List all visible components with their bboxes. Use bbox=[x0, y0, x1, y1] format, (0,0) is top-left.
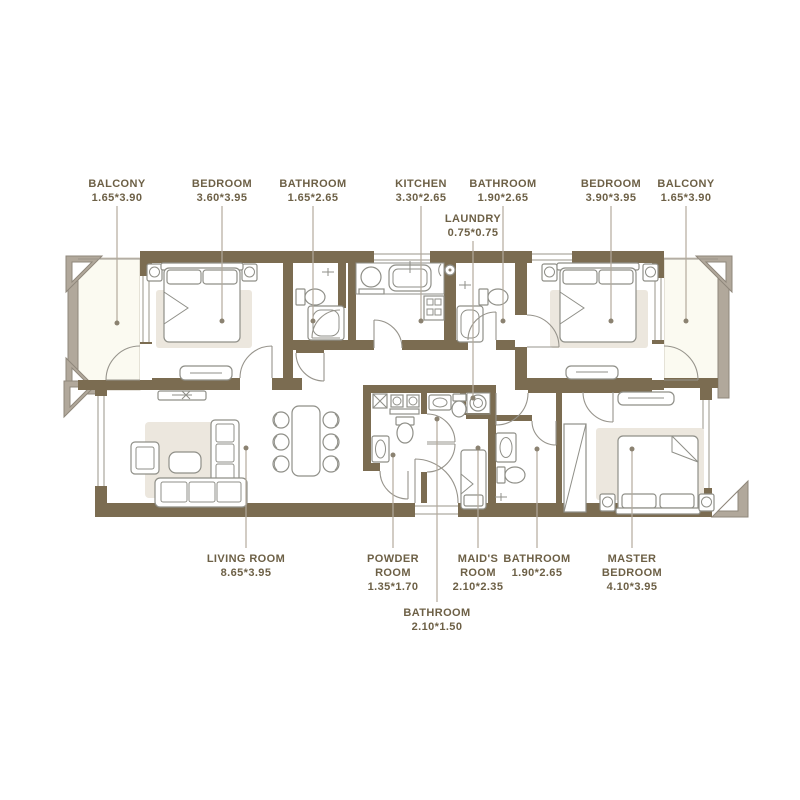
tv-unit bbox=[158, 391, 206, 400]
bedroom-right-furniture bbox=[542, 263, 658, 379]
label-powder-room-1: POWDER bbox=[367, 553, 419, 565]
label-bathroom-top-left-dims: 1.65*2.65 bbox=[288, 192, 339, 204]
label-bathroom-top-left: BATHROOM bbox=[279, 178, 346, 190]
door-powder-room bbox=[380, 471, 408, 499]
label-living-room-dims: 8.65*3.95 bbox=[221, 567, 272, 579]
label-maids-room-dims: 2.10*2.35 bbox=[453, 581, 504, 593]
label-master-bedroom-1: MASTER bbox=[608, 553, 657, 565]
window-bedroom-right bbox=[532, 251, 572, 263]
label-bathroom-bottom-middle-dims: 2.10*1.50 bbox=[412, 621, 463, 633]
label-laundry: LAUNDRY bbox=[445, 213, 501, 225]
label-powder-room-dims: 1.35*1.70 bbox=[368, 581, 419, 593]
label-bathroom-top-right-dims: 1.90*2.65 bbox=[478, 192, 529, 204]
bathroom-top-right-fixtures bbox=[457, 281, 508, 342]
label-maids-room-2: ROOM bbox=[460, 567, 496, 579]
balcony-left bbox=[66, 256, 140, 394]
coffee-table bbox=[169, 452, 201, 473]
label-powder-room-2: ROOM bbox=[375, 567, 411, 579]
label-balcony-left: BALCONY bbox=[88, 178, 145, 190]
label-bedroom-right-dims: 3.90*3.95 bbox=[586, 192, 637, 204]
hob-icon bbox=[424, 296, 444, 320]
maids-room-furniture bbox=[461, 450, 486, 509]
wardrobe bbox=[564, 424, 586, 512]
label-living-room: LIVING ROOM bbox=[207, 553, 285, 565]
master-bedroom-furniture bbox=[564, 392, 714, 514]
door-opening-balcony-left bbox=[140, 344, 152, 380]
label-master-bedroom-dims: 4.10*3.95 bbox=[607, 581, 658, 593]
dining-set bbox=[273, 406, 339, 476]
living-room-furniture bbox=[131, 391, 339, 507]
label-master-bedroom-2: BEDROOM bbox=[602, 567, 662, 579]
door-opening-balcony-right bbox=[652, 344, 664, 380]
door-opening-bedroom-right bbox=[515, 315, 527, 347]
label-bedroom-left-dims: 3.60*3.95 bbox=[197, 192, 248, 204]
bathroom-bottom-middle-fixtures bbox=[429, 394, 466, 417]
label-bathroom-top-right: BATHROOM bbox=[469, 178, 536, 190]
sofa-main bbox=[155, 478, 247, 507]
armchair bbox=[131, 442, 159, 474]
label-maids-room-1: MAID'S bbox=[458, 553, 498, 565]
window-bedroom-right-ext bbox=[652, 278, 664, 340]
label-bathroom-bottom-middle: BATHROOM bbox=[403, 607, 470, 619]
door-living-hall bbox=[296, 353, 324, 381]
door-bathroom-bottom-right bbox=[532, 421, 556, 445]
label-bedroom-right: BEDROOM bbox=[581, 178, 641, 190]
door-master-bedroom bbox=[583, 392, 613, 422]
label-balcony-right: BALCONY bbox=[657, 178, 714, 190]
label-kitchen: KITCHEN bbox=[395, 178, 447, 190]
label-kitchen-dims: 3.30*2.65 bbox=[396, 192, 447, 204]
label-balcony-right-dims: 1.65*3.90 bbox=[661, 192, 712, 204]
floor-plan-page: BALCONY 1.65*3.90 BEDROOM 3.60*3.95 BATH… bbox=[0, 0, 800, 800]
kitchen-fixtures bbox=[356, 261, 455, 320]
window-living-room bbox=[95, 396, 107, 486]
corner-brace-bottom-right-inner bbox=[718, 491, 738, 511]
label-bathroom-bottom-right-dims: 1.90*2.65 bbox=[512, 567, 563, 579]
door-bedroom-left bbox=[240, 346, 272, 378]
door-bathroom-bottom-middle bbox=[427, 414, 455, 442]
window-bedroom-left bbox=[140, 276, 152, 342]
sofa-side bbox=[211, 420, 239, 484]
water-heater-icon bbox=[439, 264, 455, 276]
label-balcony-left-dims: 1.65*3.90 bbox=[92, 192, 143, 204]
door-kitchen bbox=[374, 320, 402, 348]
label-laundry-dims: 0.75*0.75 bbox=[448, 227, 499, 239]
label-bedroom-left: BEDROOM bbox=[192, 178, 252, 190]
bedroom-left-furniture bbox=[147, 263, 257, 380]
bathroom-bottom-right-fixtures bbox=[495, 433, 525, 501]
powder-room-fixtures bbox=[372, 394, 419, 462]
laundry-washer bbox=[467, 393, 490, 414]
bathroom-top-left-fixtures bbox=[296, 268, 344, 340]
floor-plan: BALCONY 1.65*3.90 BEDROOM 3.60*3.95 BATH… bbox=[0, 0, 800, 800]
label-bathroom-bottom-right: BATHROOM bbox=[503, 553, 570, 565]
